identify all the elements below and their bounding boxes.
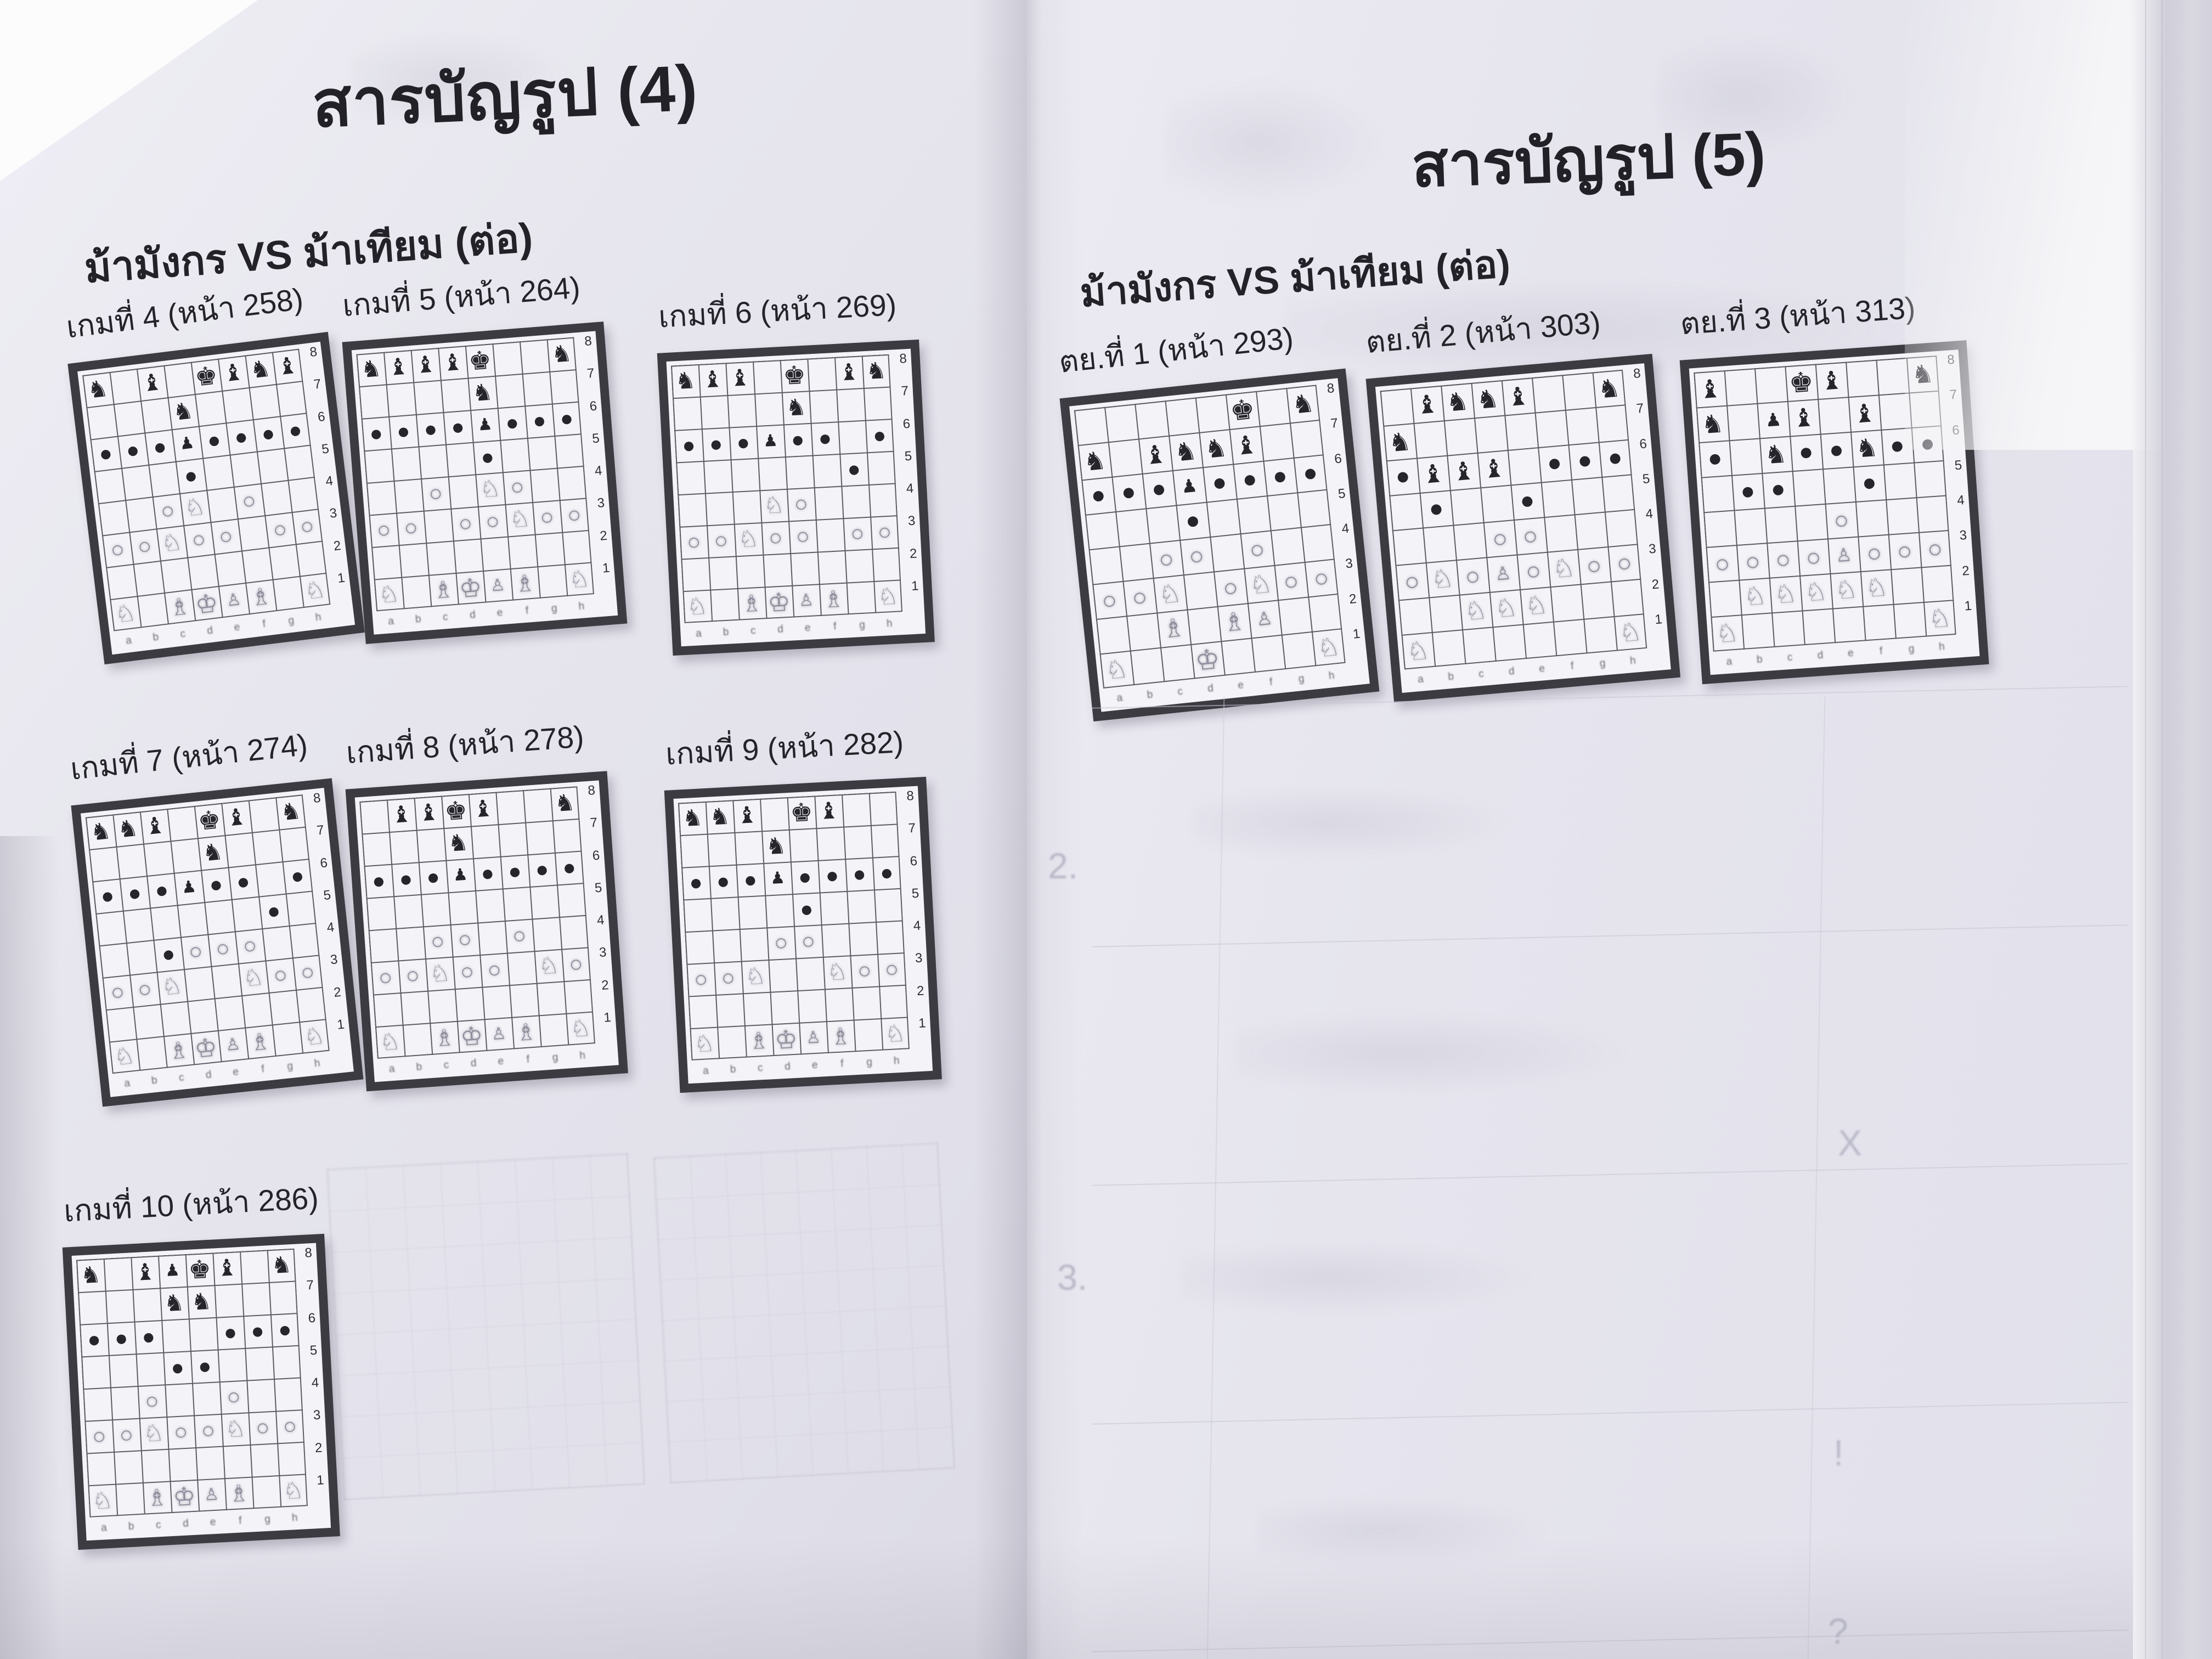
piece-bp-e6: ● — [1211, 470, 1228, 496]
piece-bp-e5: ● — [480, 445, 495, 469]
rank-label: 7 — [1636, 402, 1646, 438]
rank-label: 6 — [319, 856, 330, 889]
piece-wp-b3: ○ — [1131, 583, 1148, 610]
file-label: f — [261, 1063, 265, 1075]
piece-bp-g6: ● — [1272, 464, 1289, 489]
piece-bp-b5: ● — [1428, 496, 1444, 521]
piece-bp-e6: ● — [480, 862, 495, 885]
piece-bs-d6: ♟ — [770, 870, 785, 887]
file-label: a — [703, 1065, 709, 1077]
page-title-left: สารบัญรูป (4) — [310, 35, 700, 155]
piece-bb-c8: ♝ — [144, 814, 167, 839]
piece-wn-f2: ♘ — [1864, 574, 1888, 601]
piece-bp-h6: ● — [872, 424, 887, 447]
piece-bn-e7: ♞ — [1203, 435, 1228, 462]
piece-wp-d4: ○ — [1491, 525, 1509, 551]
piece-bp-g6: ● — [260, 422, 276, 445]
piece-wn-c2: ♘ — [1773, 580, 1797, 607]
rank-label: 8 — [588, 784, 597, 817]
book-photo: สารบัญรูป (4) ม้ามังกร VS ม้าเทียม (ต่อ)… — [0, 0, 2212, 1659]
figure-caption: เกมที่ 8 (หน้า 278) — [345, 712, 606, 777]
file-label: g — [1908, 643, 1915, 656]
piece-bn-a8: ♞ — [89, 820, 112, 845]
piece-wp-f4: ○ — [242, 934, 258, 958]
file-label: a — [125, 635, 132, 647]
piece-bn-h8: ♞ — [1596, 375, 1621, 402]
rank-label: 7 — [313, 378, 324, 411]
rank-label: 8 — [584, 335, 594, 368]
piece-wb-f1: ♗ — [249, 584, 272, 610]
piece-wp-d3: ○ — [190, 527, 207, 552]
piece-bp-e6: ● — [208, 873, 224, 896]
piece-wp-f3: ○ — [1866, 540, 1883, 566]
piece-wp-c3: ○ — [1464, 562, 1481, 589]
rank-label: 3 — [597, 496, 607, 529]
piece-bn-a8: ♞ — [681, 806, 703, 831]
piece-bk-f8: ♚ — [1229, 395, 1256, 425]
piece-wn-a1: ♘ — [1104, 656, 1129, 683]
rank-label: 2 — [1961, 564, 1971, 600]
piece-bp-a6: ● — [98, 442, 114, 466]
piece-bp-d6: ● — [450, 416, 465, 439]
piece-wp-a3: ○ — [693, 967, 709, 991]
piece-bn-c6: ♞ — [1764, 441, 1788, 468]
rank-label: 8 — [1633, 367, 1643, 403]
file-label: d — [470, 1057, 477, 1070]
piece-wp-f4: ○ — [241, 489, 257, 513]
file-label: d — [785, 1061, 791, 1074]
piece-wp-h3: ○ — [1926, 535, 1943, 562]
piece-bp-a6: ● — [681, 434, 696, 456]
piece-wn-h1: ♘ — [303, 1024, 326, 1049]
piece-wp-g3: ○ — [1896, 538, 1913, 564]
piece-bb-c8: ♝ — [417, 800, 439, 825]
board-grid: ♞♞♝♚♝♞●●●♟●●●●●○○○○♘♘○○♘♗♔♙♗♘ — [678, 792, 910, 1060]
piece-wn-a1: ♘ — [377, 582, 400, 607]
piece-wn-a1: ♘ — [114, 601, 137, 626]
figure-g9: เกมที่ 9 (หน้า 282)♞♞♝♚♝♞●●●♟●●●●●○○○○♘♘… — [661, 717, 942, 1093]
rank-label: 1 — [337, 571, 348, 604]
file-label: a — [388, 1063, 395, 1076]
rank-label: 4 — [1341, 522, 1352, 558]
rank-label: 7 — [586, 367, 596, 400]
piece-bp-a6: ● — [369, 422, 383, 445]
piece-bp-e6: ● — [798, 866, 812, 888]
piece-bk-e8: ♚ — [188, 1256, 212, 1283]
piece-wp-e3: ○ — [1525, 557, 1542, 584]
rank-label: 2 — [601, 979, 611, 1012]
file-label: e — [498, 1056, 504, 1068]
rank-label: 3 — [329, 507, 340, 540]
piece-ws-e1: ♙ — [225, 1036, 241, 1054]
piece-wp-b3: ○ — [119, 1423, 134, 1447]
piece-wp-f4: ○ — [510, 475, 526, 499]
piece-wn-a1: ♘ — [1406, 637, 1430, 664]
piece-wn-d2: ♘ — [1804, 578, 1828, 605]
piece-bp-a6: ● — [87, 1328, 101, 1351]
piece-wp-b3: ○ — [721, 966, 736, 990]
file-label: d — [206, 625, 213, 637]
piece-bp-g6: ● — [250, 1320, 264, 1342]
piece-wp-d4: ○ — [188, 939, 204, 963]
rank-label: 8 — [906, 789, 915, 822]
file-label: d — [1207, 682, 1214, 695]
page-shading — [1027, 1538, 2133, 1659]
piece-wp-a3: ○ — [92, 1424, 107, 1448]
piece-wp-a3: ○ — [686, 530, 702, 554]
piece-wb-f1: ♗ — [228, 1481, 250, 1505]
board-grid: ♞♝♝♚♝♞♞●●●♟●●●●♘○○○♘○○○○♘♗♔♙♗♘ — [671, 354, 902, 623]
piece-wb-c1: ♗ — [167, 1038, 190, 1063]
rank-label: 6 — [902, 417, 911, 450]
piece-bn-h8: ♞ — [270, 1253, 292, 1277]
piece-bn-e7: ♞ — [201, 840, 224, 865]
piece-wn-a1: ♘ — [1715, 620, 1739, 647]
rank-label: 5 — [309, 1344, 318, 1377]
piece-wn-c3: ♘ — [160, 974, 183, 999]
file-label: a — [388, 616, 394, 628]
file-label: h — [315, 611, 322, 624]
piece-wn-a1: ♘ — [379, 1030, 401, 1054]
file-label: h — [579, 1049, 586, 1062]
piece-wp-a3: ○ — [1403, 568, 1421, 594]
file-label: e — [496, 607, 503, 619]
show-through-board — [653, 1142, 955, 1483]
file-label: d — [205, 1069, 212, 1081]
piece-bn-h8: ♞ — [865, 359, 887, 383]
piece-wp-h3: ○ — [568, 952, 584, 976]
piece-bn-e7: ♞ — [190, 1290, 212, 1314]
piece-wb-c1: ♗ — [741, 591, 763, 616]
board-grid: ♞♞♝♚♝♞♞●●●♟●●●●●○○○○○♘♘○○♘♗♔♙♗♘ — [86, 794, 330, 1074]
piece-wb-f1: ♗ — [513, 571, 536, 596]
piece-bp-f6: ● — [233, 425, 249, 449]
file-label: g — [1599, 658, 1606, 670]
rank-label: 4 — [1957, 494, 1967, 529]
piece-bn-h8: ♞ — [1290, 390, 1316, 417]
piece-bn-c8: ♞ — [1445, 388, 1470, 415]
piece-wp-h3: ○ — [283, 1414, 298, 1438]
piece-bp-f6: ● — [1546, 450, 1562, 476]
piece-wp-c4: ○ — [430, 929, 445, 953]
piece-wp-e3: ○ — [201, 1419, 216, 1442]
piece-wp-d3: ○ — [459, 960, 475, 984]
piece-bp-c6: ● — [1150, 476, 1167, 502]
file-label: g — [859, 619, 866, 632]
piece-bb-f7: ♝ — [1852, 400, 1876, 427]
rank-label: 4 — [311, 1376, 320, 1409]
piece-bp-f6: ● — [235, 870, 251, 893]
piece-bk-e8: ♚ — [197, 807, 222, 834]
board-grid: ♝♞♞♝♞♞●♝♝♝●●●●●○○○♘○♙○♘○○♘♘♘♘♘ — [1380, 370, 1647, 670]
piece-wp-f4: ○ — [226, 1385, 241, 1409]
piece-bs-d6: ♟ — [453, 866, 469, 884]
piece-bp-b6: ● — [398, 868, 413, 891]
rank-label: 1 — [602, 561, 612, 594]
file-label: e — [210, 1516, 216, 1529]
piece-wp-g3: ○ — [1282, 567, 1300, 594]
file-label: h — [1629, 655, 1636, 668]
piece-wp-a3: ○ — [376, 518, 392, 542]
file-label: e — [233, 622, 240, 634]
piece-ws-e3: ♙ — [1835, 545, 1853, 565]
piece-bb-f8: ♝ — [222, 360, 245, 386]
piece-wp-d3: ○ — [458, 511, 473, 535]
file-label: b — [416, 1061, 422, 1074]
piece-bn-a7: ♞ — [1387, 428, 1412, 455]
piece-wp-c4: ○ — [144, 1389, 160, 1413]
rank-label: 3 — [599, 946, 608, 979]
file-label: f — [840, 1058, 844, 1070]
piece-bp-c5: ● — [1770, 477, 1786, 502]
piece-bn-a8: ♞ — [674, 369, 696, 393]
piece-wk-d1: ♔ — [459, 1023, 483, 1049]
ghost-rule — [1092, 1402, 2129, 1425]
piece-wk-d1: ♔ — [774, 1026, 798, 1052]
rank-label: 5 — [911, 887, 920, 920]
piece-bp-a6: ● — [371, 870, 386, 893]
file-label: f — [1570, 661, 1574, 673]
file-label: d — [469, 609, 476, 622]
piece-wn-e2: ♘ — [1834, 577, 1858, 603]
piece-bs-e6: ♟ — [477, 416, 493, 434]
piece-bb-c8: ♝ — [134, 1260, 156, 1284]
board-grid: ♞♝♝♝♚♞♞●●●●♟●●●●○♘○○○○○♘○○♘♗♔♙♗♘ — [356, 337, 594, 611]
piece-bn-e7: ♞ — [471, 381, 494, 405]
piece-wb-f1: ♗ — [830, 1024, 851, 1048]
piece-wn-h1: ♘ — [569, 1016, 591, 1041]
piece-bk-e8: ♚ — [782, 362, 806, 388]
piece-wp-h3: ○ — [566, 503, 582, 527]
piece-bn-a7: ♞ — [1082, 447, 1107, 475]
piece-bp-a6: ● — [689, 871, 703, 894]
piece-bn-d7: ♞ — [163, 1291, 185, 1315]
piece-bp-g5: ● — [266, 899, 281, 922]
piece-wn-c3: ♘ — [429, 961, 451, 986]
piece-wp-f4: ○ — [511, 924, 527, 948]
makruk-board-diagram: ♝♝♚♝♞♞●●●♟●●●●○○○○○♘○○♘○♘♗♔♙♗♘87654321ab… — [346, 771, 628, 1091]
ghost-x-mark: X — [1838, 1122, 1862, 1164]
file-label: c — [179, 628, 186, 641]
piece-ws-e1: ♙ — [805, 1029, 821, 1046]
piece-wn-h1: ♘ — [1928, 605, 1952, 632]
piece-bp-d5: ● — [170, 1356, 184, 1379]
piece-wb-c1: ♗ — [168, 594, 191, 619]
piece-wp-b3: ○ — [403, 516, 419, 540]
piece-bp-g5: ● — [847, 458, 861, 480]
piece-bs-c7: ♟ — [1764, 410, 1782, 429]
piece-bk-d8: ♚ — [1788, 368, 1814, 397]
file-label: b — [152, 631, 159, 644]
piece-wp-e4: ○ — [801, 929, 816, 953]
piece-wn-f3: ♘ — [1551, 554, 1576, 581]
rank-label: 5 — [1338, 487, 1348, 523]
piece-bn-h8: ♞ — [554, 791, 575, 816]
piece-bp-g6: ● — [535, 858, 550, 881]
page-corner-backdrop — [0, 0, 258, 181]
file-label: f — [262, 618, 266, 630]
rank-label: 5 — [323, 889, 333, 922]
rank-label: 1 — [1964, 599, 1974, 635]
page-edge-line — [2145, 0, 2146, 1659]
rank-label: 4 — [906, 482, 915, 515]
rank-label: 3 — [330, 953, 340, 986]
file-label: c — [1478, 668, 1484, 681]
file-label: a — [1417, 674, 1424, 686]
show-through-board — [326, 1153, 646, 1500]
file-label: c — [758, 1062, 764, 1074]
piece-wn-a1: ♘ — [113, 1044, 136, 1069]
piece-bp-c4: ● — [161, 943, 176, 966]
piece-wp-a3: ○ — [1714, 550, 1731, 577]
piece-bp-d6: ● — [1798, 440, 1814, 465]
figure-g8: เกมที่ 8 (หน้า 278)♝♝♚♝♞♞●●●♟●●●●○○○○○♘○… — [341, 712, 628, 1092]
figure-t2: ตย.ที่ 2 (หน้า 303)♝♞♞♝♞♞●♝♝♝●●●●●○○○♘○♙… — [1361, 294, 1680, 702]
piece-ws-e1: ♙ — [204, 1486, 219, 1503]
file-label: h — [314, 1058, 321, 1070]
piece-bp-b6: ● — [127, 882, 142, 905]
piece-wp-e3: ○ — [485, 509, 501, 533]
left-page: สารบัญรูป (4) ม้ามังกร VS ม้าเทียม (ต่อ)… — [0, 0, 1027, 1659]
piece-bn-d7: ♞ — [447, 831, 469, 856]
piece-bp-e6: ● — [206, 428, 222, 452]
piece-bp-a6: ● — [1395, 464, 1411, 489]
figure-caption: เกมที่ 6 (หน้า 269) — [657, 280, 918, 341]
piece-wp-a3: ○ — [109, 980, 126, 1004]
piece-bn-a8: ♞ — [86, 377, 109, 402]
page-edge-line — [2162, 0, 2163, 1659]
piece-wb-c1: ♗ — [432, 578, 455, 602]
rank-label: 1 — [603, 1011, 613, 1044]
piece-bp-e5: ● — [198, 1355, 212, 1378]
piece-bp-d5: ● — [183, 464, 199, 488]
piece-wp-e4: ○ — [215, 936, 231, 961]
file-label: e — [1237, 679, 1244, 692]
ghost-rule — [1092, 1163, 2129, 1186]
piece-wn-f3: ♘ — [509, 507, 531, 532]
piece-wn-c3: ♘ — [160, 531, 183, 556]
piece-bb-f8: ♝ — [225, 805, 248, 831]
rank-label: 3 — [313, 1409, 321, 1442]
file-label: b — [723, 627, 729, 639]
file-label: g — [551, 602, 557, 615]
rank-label: 2 — [314, 1441, 323, 1474]
section-subtitle-right: ม้ามังกร VS ม้าเทียม (ต่อ) — [1078, 232, 1512, 324]
board-grid: ♞♝♚♝♞♝♞●●●♟●●●●●○♘○○○♘○○○○♘♗♔♙♗♘ — [82, 349, 330, 631]
piece-bb-h8: ♝ — [276, 354, 299, 379]
piece-bp-f6: ● — [825, 864, 839, 887]
piece-bn-a8: ♞ — [80, 1263, 101, 1288]
piece-bs-d6: ♟ — [180, 878, 197, 896]
file-label: c — [1787, 652, 1793, 664]
piece-wp-c4: ○ — [428, 482, 444, 506]
show-through-blob — [1235, 1007, 1652, 1100]
makruk-board-diagram: ♞♝♝♚♝♞♞●●●♟●●●●♘○○○♘○○○○♘♗♔♙♗♘87654321ab… — [657, 340, 935, 656]
piece-wp-b3: ○ — [714, 529, 729, 552]
piece-bk-e8: ♚ — [467, 347, 492, 374]
makruk-board-diagram: ♞♞♝♚♝♞♞●●●♟●●●●●○○○○○♘♘○○♘♗♔♙♗♘87654321a… — [71, 778, 363, 1107]
page-shading — [0, 1538, 1027, 1659]
piece-wp-e3: ○ — [217, 524, 234, 549]
piece-wn-g3: ♘ — [538, 954, 560, 979]
file-label: c — [156, 1519, 162, 1531]
piece-wp-b3: ○ — [405, 963, 420, 988]
show-through-blob — [1181, 1237, 1554, 1319]
piece-bp-f6: ● — [818, 427, 832, 449]
file-label: g — [264, 1514, 271, 1526]
piece-ws-e1: ♙ — [225, 591, 242, 610]
piece-wn-h1: ♘ — [303, 578, 326, 603]
piece-bp-a6: ● — [1707, 446, 1723, 471]
piece-wn-h1: ♘ — [884, 1022, 906, 1046]
file-label: f — [239, 1515, 242, 1527]
piece-bn-g8: ♞ — [249, 357, 272, 382]
rank-label: 2 — [599, 529, 609, 562]
piece-wp-h3: ○ — [299, 514, 315, 539]
file-label: b — [1147, 689, 1154, 702]
file-label: f — [833, 620, 837, 633]
piece-bp-c6: ● — [426, 866, 441, 889]
rank-label: 1 — [911, 579, 920, 612]
piece-bp-b6: ● — [396, 420, 411, 443]
piece-bp-c6: ● — [154, 879, 170, 902]
file-label: g — [1298, 673, 1305, 686]
file-label: c — [178, 1072, 185, 1085]
file-label: b — [128, 1521, 134, 1533]
rank-label: 4 — [325, 475, 336, 507]
rank-label: 1 — [317, 1474, 325, 1506]
piece-bb-e8: ♝ — [1819, 367, 1843, 394]
piece-wp-h3: ○ — [1312, 565, 1330, 591]
figure-g7: เกมที่ 7 (หน้า 274)♞♞♝♚♝♞♞●●●♟●●●●●○○○○○… — [65, 719, 363, 1107]
piece-bk-e8: ♚ — [789, 799, 814, 826]
piece-bp-f6: ● — [505, 411, 520, 435]
rank-label: 2 — [1348, 592, 1359, 628]
piece-wn-h1: ♘ — [1316, 634, 1341, 661]
piece-ws-f2: ♙ — [1255, 609, 1273, 629]
rank-label: 5 — [904, 450, 913, 483]
file-label: f — [1269, 676, 1273, 689]
piece-bb-f7: ♝ — [1233, 431, 1259, 459]
rank-label: 2 — [333, 985, 343, 1018]
piece-bp-h6: ● — [290, 865, 305, 888]
rank-label: 3 — [907, 515, 916, 548]
figure-g6: เกมที่ 6 (หน้า 269)♞♝♝♚♝♞♞●●●♟●●●●♘○○○♘○… — [654, 280, 935, 656]
piece-wk-d1: ♔ — [767, 589, 791, 615]
piece-wn-d4: ♘ — [183, 495, 206, 520]
piece-bn-f6: ♞ — [1855, 435, 1879, 461]
piece-bp-f6: ● — [223, 1321, 238, 1344]
file-label: f — [525, 605, 529, 617]
piece-bn-a7: ♞ — [1700, 410, 1724, 437]
file-label: h — [1938, 641, 1945, 653]
file-label: c — [751, 625, 757, 637]
piece-wn-b2: ♘ — [1743, 583, 1767, 610]
rank-label: 3 — [915, 952, 923, 985]
rank-label: 5 — [1954, 459, 1964, 494]
figure-caption: ตย.ที่ 2 (หน้า 303) — [1364, 294, 1651, 366]
file-label: e — [1538, 663, 1545, 675]
piece-bp-b6: ● — [716, 870, 730, 893]
rank-label: 5 — [1642, 472, 1652, 508]
piece-bn-b8: ♞ — [709, 805, 731, 829]
piece-bp-b6: ● — [709, 433, 723, 455]
file-label: g — [552, 1052, 558, 1064]
file-label: g — [866, 1057, 873, 1069]
piece-wp-b3: ○ — [136, 534, 153, 558]
rank-label: 7 — [908, 822, 917, 855]
file-label: a — [101, 1522, 108, 1534]
